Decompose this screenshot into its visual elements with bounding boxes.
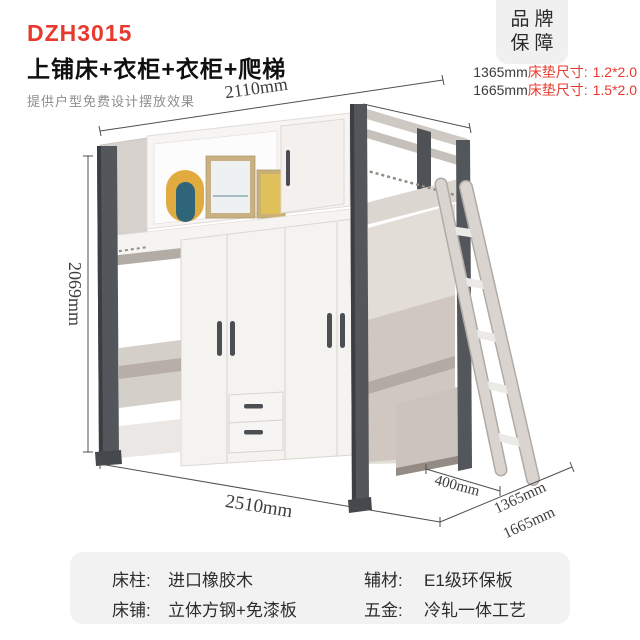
- lower-bed-left: [119, 340, 181, 458]
- wardrobe-handle: [217, 321, 222, 356]
- header: DZH3015 上铺床+衣柜+衣柜+爬梯 提供户型免费设计摆放效果: [27, 20, 286, 110]
- wardrobe-handle: [327, 313, 332, 348]
- mattress-size-value: 1.5*2.0: [593, 82, 637, 98]
- guardrail-post: [417, 128, 431, 193]
- spec-table: 床柱: 进口橡胶木 辅材: E1级环保板 床铺: 立体方钢+免漆板 五金: 冷轧…: [70, 552, 570, 624]
- spec-value: 立体方钢+免漆板: [168, 596, 364, 621]
- cabinet-door: [281, 119, 344, 213]
- spec-value: 进口橡胶木: [168, 566, 364, 591]
- spec-label: 五金:: [364, 596, 424, 621]
- mattress-width: 1365mm: [473, 64, 527, 80]
- mattress-spec-line: 1665mm床垫尺寸:1.5*2.0: [400, 81, 637, 99]
- product-subtitle: 提供户型免费设计摆放效果: [27, 91, 286, 110]
- model-number: DZH3015: [27, 20, 286, 47]
- cabinet-door-handle: [286, 150, 290, 186]
- spec-label: 床铺:: [112, 596, 168, 621]
- large-picture-frame: [206, 156, 255, 218]
- wardrobe: [181, 219, 353, 466]
- spec-label: 辅材:: [364, 566, 424, 591]
- spec-label: 床柱:: [112, 566, 168, 591]
- mattress-size-label: 床垫尺寸:: [528, 64, 588, 80]
- brand-badge-line2: 保障: [510, 32, 558, 56]
- mattress-specs: 1365mm床垫尺寸:1.2*2.0 1665mm床垫尺寸:1.5*2.0: [400, 63, 637, 99]
- mattress-spec-line: 1365mm床垫尺寸:1.2*2.0: [400, 63, 637, 81]
- mattress-width: 1665mm: [473, 82, 527, 98]
- wardrobe-handle: [230, 321, 235, 356]
- mattress-size-label: 床垫尺寸:: [528, 82, 588, 98]
- wardrobe-drawers: [229, 392, 283, 453]
- rainbow-arch-decor: [166, 170, 204, 222]
- drawer-handle: [244, 404, 263, 409]
- product-title: 上铺床+衣柜+衣柜+爬梯: [27, 50, 286, 84]
- dimension-ladder-depth: 400mm: [433, 472, 482, 499]
- spec-value: 冷轧一体工艺: [424, 596, 570, 621]
- product-card: 2110mm 2069mm 2510mm 400mm 1365mm 1665mm…: [0, 0, 640, 640]
- dimension-left-height: 2069mm: [65, 262, 85, 326]
- spec-value: E1级环保板: [424, 566, 570, 591]
- overhead-cabinet: [147, 113, 350, 229]
- drawer-handle: [244, 430, 263, 435]
- brand-badge-line1: 品牌: [510, 8, 558, 32]
- upper-guardrail: [360, 107, 468, 193]
- brand-badge: 品牌 保障: [496, 0, 568, 64]
- mattress-size-value: 1.2*2.0: [593, 64, 637, 80]
- wardrobe-handle: [340, 313, 345, 348]
